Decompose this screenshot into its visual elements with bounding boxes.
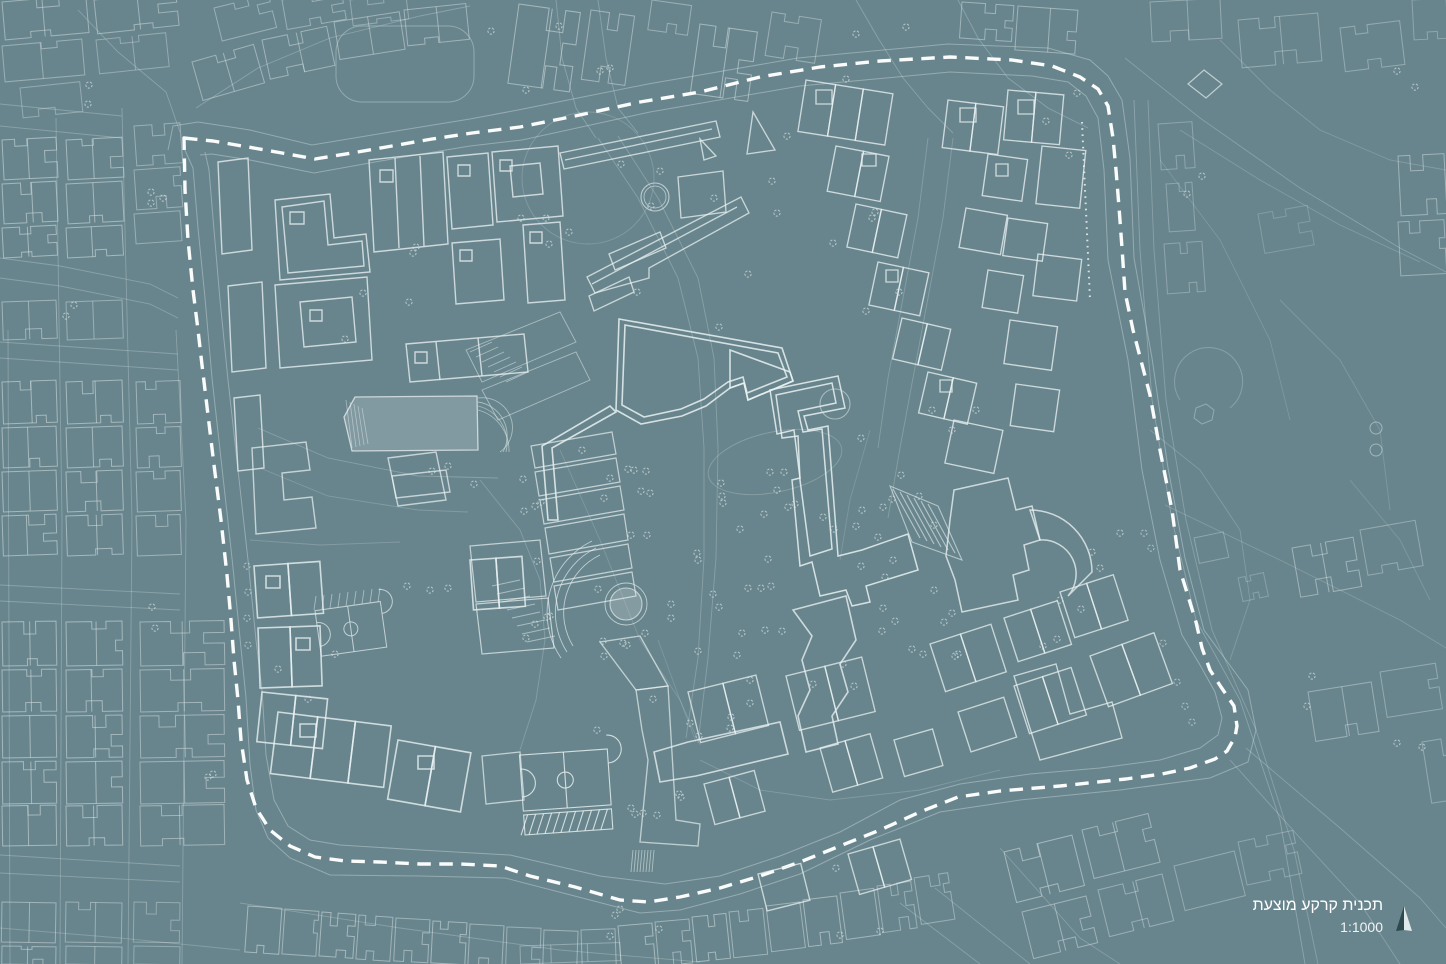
svg-text:1:1000: 1:1000 <box>1340 919 1383 935</box>
svg-text:תכנית קרקע מוצעת: תכנית קרקע מוצעת <box>1253 897 1383 914</box>
